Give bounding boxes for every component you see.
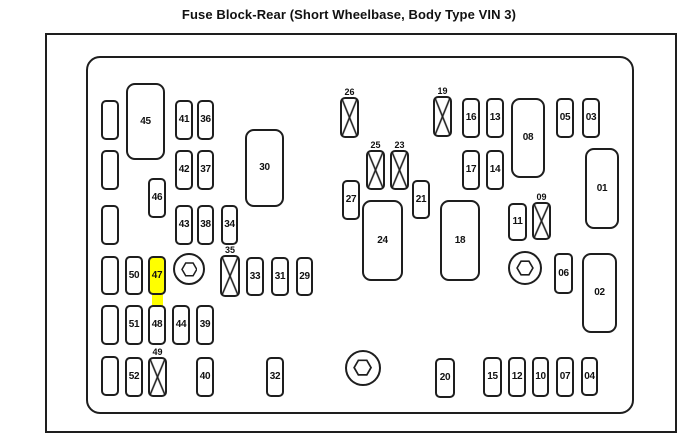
fuse-31: 31 (271, 257, 289, 296)
fuse-06: 06 (554, 253, 573, 294)
fuse-number-label: 16 (466, 113, 477, 123)
fuse-number-label: 14 (490, 165, 501, 175)
diagram-title: Fuse Block-Rear (Short Wheelbase, Body T… (0, 7, 698, 22)
fuse-34: 34 (221, 205, 238, 245)
fuse-23: 23 (390, 150, 409, 190)
relay-02: 02 (582, 253, 617, 333)
fuse-51: 51 (125, 305, 143, 345)
fuse-44: 44 (172, 305, 190, 345)
fuse-21: 21 (412, 180, 430, 219)
fuse-number-label: 47 (152, 271, 163, 281)
fuse-number-label: 48 (152, 320, 163, 330)
fuse-52: 52 (125, 357, 143, 397)
fuse-16: 16 (462, 98, 480, 138)
fuse-36: 36 (197, 100, 214, 140)
fuse-number-label: 40 (200, 372, 211, 382)
fuse-number-label: 05 (560, 113, 571, 123)
fuse-04: 04 (581, 357, 598, 396)
fuse-number-label: 01 (597, 184, 608, 194)
fuse-number-label: 03 (586, 113, 597, 123)
blank-slot (101, 205, 119, 245)
fuse-number-label: 19 (436, 87, 448, 96)
fuse-number-label: 21 (416, 195, 427, 205)
fuse-46: 46 (148, 178, 166, 218)
fuse-37: 37 (197, 150, 214, 190)
fuse-03: 03 (582, 98, 600, 138)
fuse-50: 50 (125, 256, 143, 295)
relay-08: 08 (511, 98, 545, 178)
blank-slot (101, 150, 119, 190)
fuse-number-label: 23 (393, 141, 405, 150)
blank-slot (101, 100, 119, 140)
fuse-number-label: 42 (179, 165, 190, 175)
fuse-43: 43 (175, 205, 193, 245)
blank-slot (101, 305, 119, 345)
fuse-07: 07 (556, 357, 574, 397)
fuse-number-label: 27 (346, 195, 357, 205)
fuse-number-label: 12 (512, 372, 523, 382)
fuse-number-label: 09 (535, 193, 547, 202)
fuse-number-label: 50 (129, 271, 140, 281)
fuse-number-label: 46 (152, 193, 163, 203)
fuse-32: 32 (266, 357, 284, 397)
fuse-09: 09 (532, 202, 551, 240)
fuse-35: 35 (220, 255, 240, 297)
fuse-number-label: 20 (440, 373, 451, 383)
fuse-number-label: 02 (594, 288, 605, 298)
fuse-number-label: 43 (179, 220, 190, 230)
fuse-number-label: 30 (259, 163, 270, 173)
hex-bolt (345, 350, 381, 386)
fuse-number-label: 36 (200, 115, 211, 125)
fuse-19: 19 (433, 96, 452, 137)
fuse-10: 10 (532, 357, 549, 397)
fuse-number-label: 49 (151, 348, 163, 357)
fuse-26: 26 (340, 97, 359, 138)
fuse-number-label: 35 (224, 246, 236, 255)
fuse-number-label: 33 (250, 272, 261, 282)
fuse-13: 13 (486, 98, 504, 138)
fuse-number-label: 13 (490, 113, 501, 123)
fuse-number-label: 44 (176, 320, 187, 330)
fuse-block-diagram-page: Fuse Block-Rear (Short Wheelbase, Body T… (0, 0, 698, 438)
fuse-05: 05 (556, 98, 574, 138)
fuse-number-label: 34 (224, 220, 235, 230)
relay-01: 01 (585, 148, 619, 229)
fuse-29: 29 (296, 257, 313, 296)
fuse-number-label: 10 (535, 372, 546, 382)
fuse-38: 38 (197, 205, 214, 245)
fuse-number-label: 17 (466, 165, 477, 175)
fuse-number-label: 07 (560, 372, 571, 382)
fuse-number-label: 39 (200, 320, 211, 330)
fuse-14: 14 (486, 150, 504, 190)
fuse-12: 12 (508, 357, 526, 397)
fuse-number-label: 25 (369, 141, 381, 150)
blank-slot (101, 356, 119, 396)
fuse-number-label: 18 (455, 236, 466, 246)
fuse-number-label: 26 (343, 88, 355, 97)
fuse-42: 42 (175, 150, 193, 190)
fuse-33: 33 (246, 257, 264, 296)
fuse-number-label: 32 (270, 372, 281, 382)
relay-30: 30 (245, 129, 284, 207)
fuse-27: 27 (342, 180, 360, 220)
relay-18: 18 (440, 200, 480, 281)
fuse-number-label: 15 (487, 372, 498, 382)
fuse-number-label: 37 (200, 165, 211, 175)
fuse-20: 20 (435, 358, 455, 398)
fuse-number-label: 11 (513, 217, 523, 227)
fuse-number-label: 04 (584, 372, 595, 382)
fuse-number-label: 06 (558, 269, 569, 279)
fuse-number-label: 41 (179, 115, 190, 125)
fuse-number-label: 51 (129, 320, 140, 330)
fuse-48: 48 (148, 305, 166, 345)
fuse-40: 40 (196, 357, 214, 397)
fuse-39: 39 (196, 305, 214, 345)
relay-24: 24 (362, 200, 403, 281)
hex-bolt (508, 251, 542, 285)
fuse-number-label: 08 (523, 133, 534, 143)
fuse-number-label: 29 (299, 272, 310, 282)
fuse-49: 49 (148, 357, 167, 397)
fuse-11: 11 (508, 203, 527, 241)
fuse-41: 41 (175, 100, 193, 140)
fuse-number-label: 38 (200, 220, 211, 230)
fuse-17: 17 (462, 150, 480, 190)
blank-slot (101, 256, 119, 295)
fuse-number-label: 52 (129, 372, 140, 382)
hex-bolt (173, 253, 205, 285)
relay-45: 45 (126, 83, 165, 160)
fuse-number-label: 24 (377, 236, 388, 246)
fuse-47: 47 (148, 256, 166, 295)
fuse-15: 15 (483, 357, 502, 397)
fuse-25: 25 (366, 150, 385, 190)
fuse-number-label: 31 (275, 272, 286, 282)
fuse-number-label: 45 (140, 117, 151, 127)
